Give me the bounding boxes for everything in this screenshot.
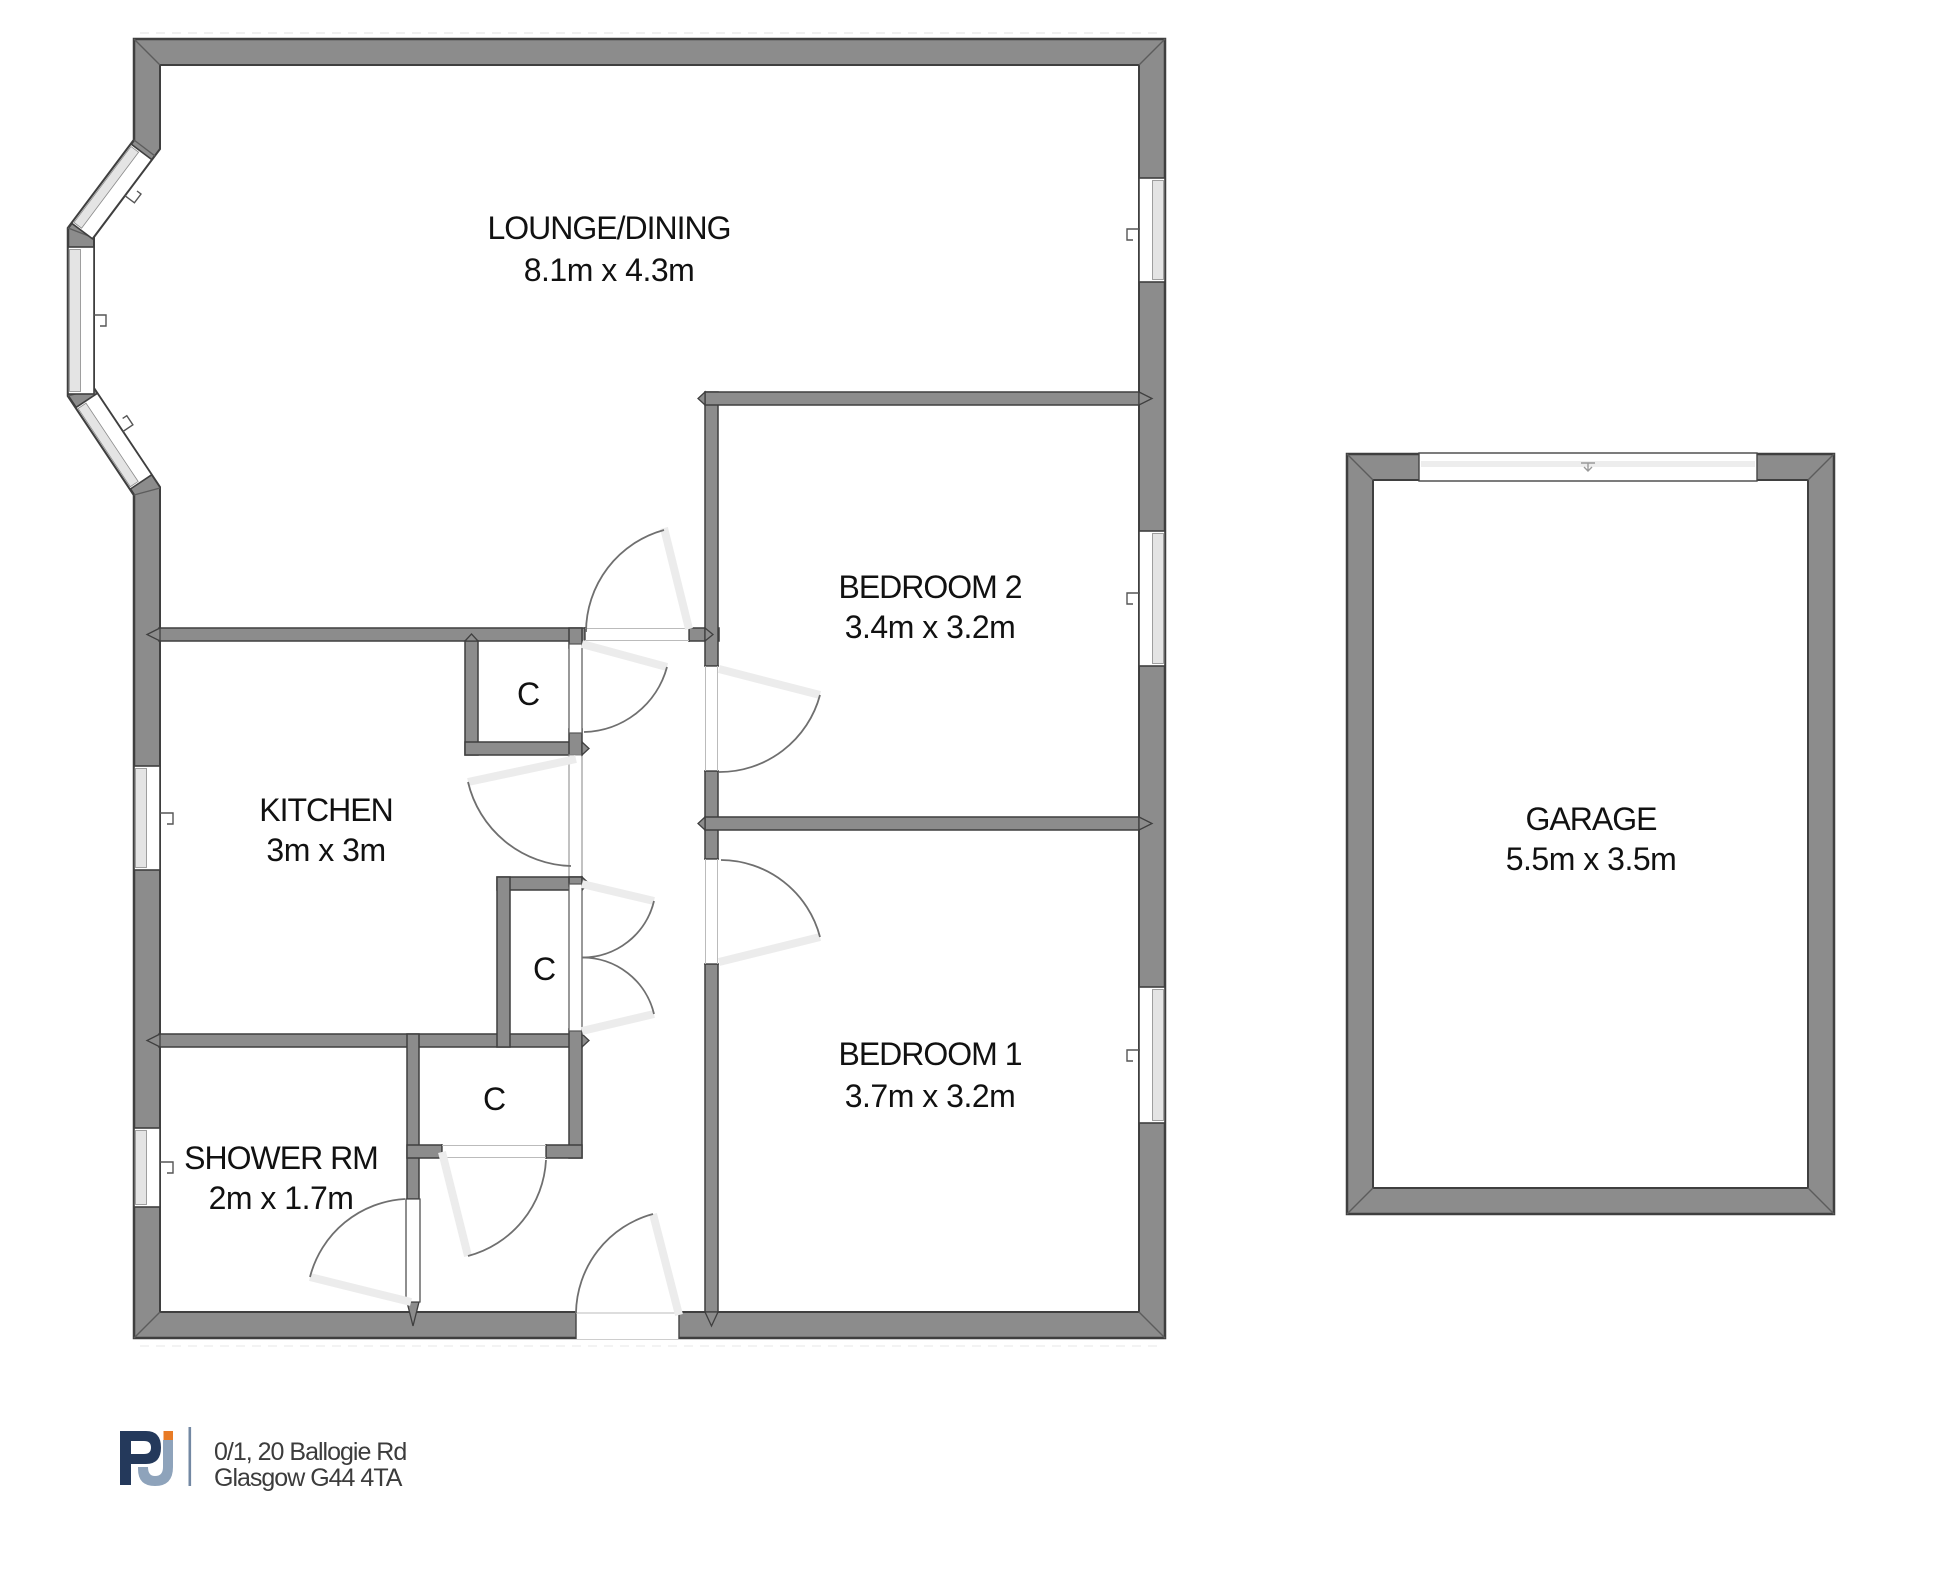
svg-text:KITCHEN: KITCHEN: [259, 792, 392, 828]
svg-text:LOUNGE/DINING: LOUNGE/DINING: [487, 210, 730, 246]
svg-text:BEDROOM 1: BEDROOM 1: [838, 1036, 1021, 1072]
svg-text:3.4m x 3.2m: 3.4m x 3.2m: [845, 609, 1016, 645]
svg-text:8.1m x 4.3m: 8.1m x 4.3m: [524, 252, 695, 288]
svg-text:2m x 1.7m: 2m x 1.7m: [209, 1180, 354, 1216]
svg-text:C: C: [517, 676, 539, 712]
svg-text:C: C: [483, 1081, 505, 1117]
svg-text:0/1, 20 Ballogie Rd: 0/1, 20 Ballogie Rd: [214, 1438, 406, 1466]
svg-text:5.5m x 3.5m: 5.5m x 3.5m: [1506, 841, 1677, 877]
svg-text:Glasgow G44 4TA: Glasgow G44 4TA: [214, 1464, 403, 1492]
svg-text:BEDROOM 2: BEDROOM 2: [838, 569, 1021, 605]
svg-text:SHOWER RM: SHOWER RM: [184, 1140, 378, 1176]
svg-text:3m x 3m: 3m x 3m: [266, 832, 385, 868]
svg-text:C: C: [533, 951, 555, 987]
svg-text:3.7m x 3.2m: 3.7m x 3.2m: [845, 1078, 1016, 1114]
svg-text:GARAGE: GARAGE: [1526, 801, 1657, 837]
